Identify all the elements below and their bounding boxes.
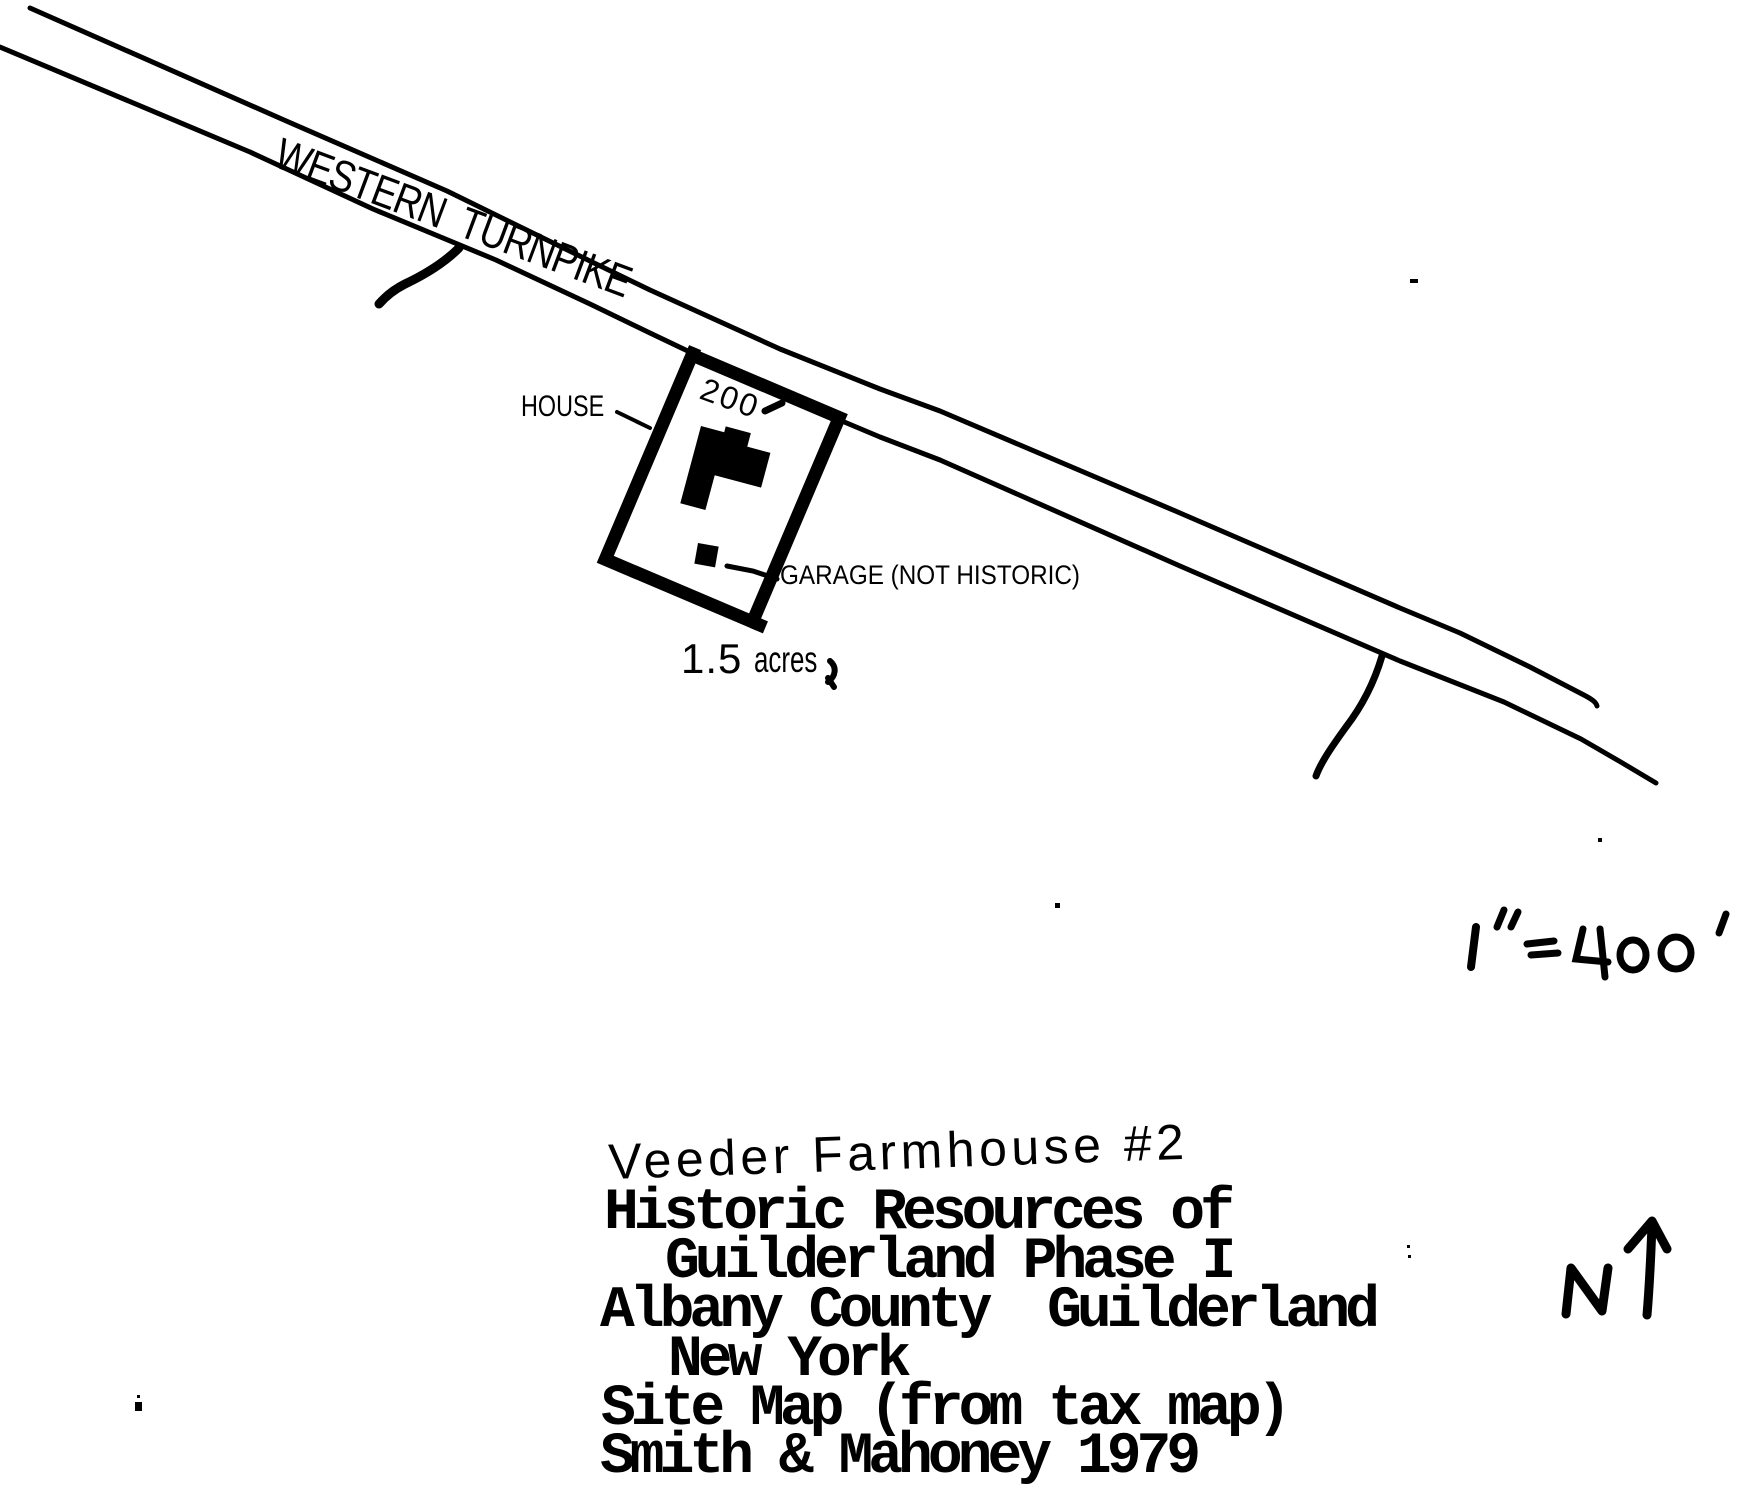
- svg-text:GARAGE (NOT HISTORIC): GARAGE (NOT HISTORIC): [780, 561, 1080, 590]
- svg-text:HOUSE: HOUSE: [521, 389, 604, 422]
- svg-text:1.5: 1.5: [681, 635, 742, 682]
- svg-text:Smith & Mahoney 1979: Smith & Mahoney 1979: [600, 1425, 1198, 1488]
- svg-text:acres: acres: [754, 638, 817, 680]
